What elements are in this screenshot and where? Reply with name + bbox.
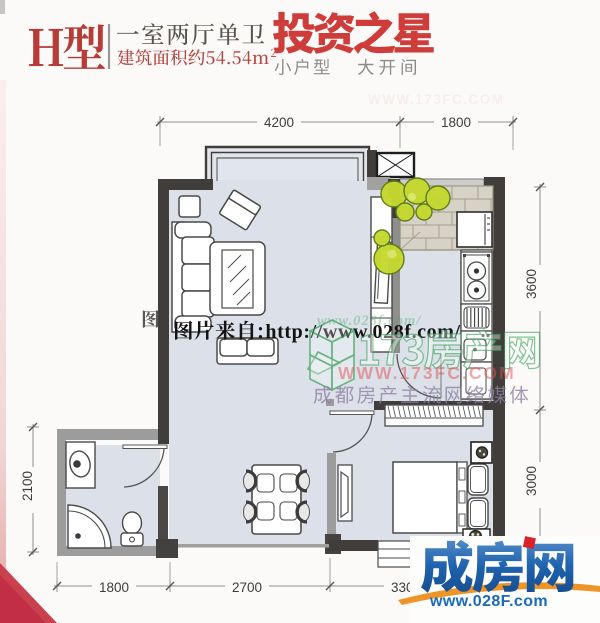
svg-text:www.028F.com: www.028F.com [429, 593, 548, 610]
svg-text:WWW.173FC.COM: WWW.173FC.COM [368, 92, 505, 107]
svg-text:WWW.173FC.COM: WWW.173FC.COM [338, 363, 516, 383]
svg-text:3600: 3600 [524, 269, 539, 299]
svg-text:3000: 3000 [524, 466, 539, 496]
svg-text:2100: 2100 [20, 471, 35, 501]
svg-text:1800: 1800 [99, 580, 129, 595]
svg-text:1800: 1800 [441, 115, 471, 130]
svg-text:2700: 2700 [232, 580, 262, 595]
svg-text:4200: 4200 [264, 115, 294, 130]
